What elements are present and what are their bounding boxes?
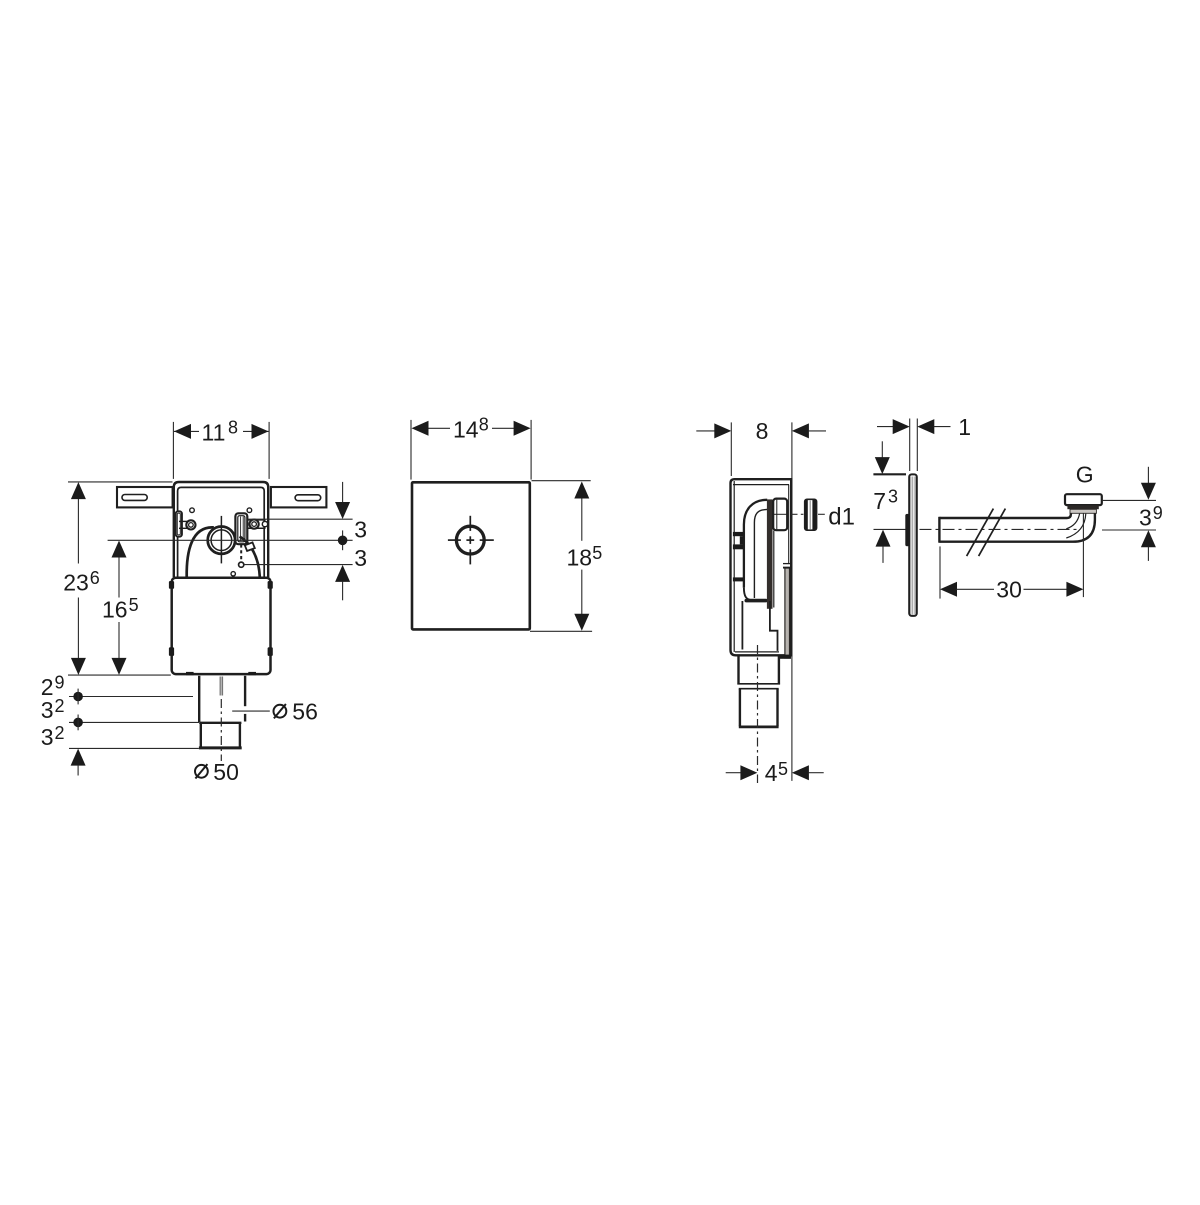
svg-text:3: 3 <box>41 697 54 723</box>
svg-text:50: 50 <box>213 759 239 785</box>
svg-text:16: 16 <box>102 597 128 623</box>
svg-text:2: 2 <box>55 696 65 716</box>
svg-text:9: 9 <box>55 673 65 693</box>
svg-text:3: 3 <box>354 545 367 571</box>
svg-text:30: 30 <box>996 577 1022 603</box>
svg-text:d1: d1 <box>828 504 855 531</box>
svg-text:2: 2 <box>55 723 65 743</box>
svg-text:3: 3 <box>1139 504 1152 530</box>
svg-text:14: 14 <box>453 416 479 442</box>
svg-text:11: 11 <box>202 419 226 445</box>
svg-text:1: 1 <box>958 414 971 440</box>
svg-text:23: 23 <box>63 570 89 596</box>
svg-text:G: G <box>1076 461 1094 487</box>
svg-text:8: 8 <box>228 418 238 438</box>
svg-text:3: 3 <box>888 487 898 507</box>
svg-text:8: 8 <box>479 415 489 435</box>
svg-text:5: 5 <box>778 759 788 779</box>
svg-text:56: 56 <box>292 698 318 724</box>
svg-text:7: 7 <box>873 488 886 514</box>
svg-text:18: 18 <box>567 545 593 571</box>
svg-text:3: 3 <box>354 516 367 542</box>
svg-text:3: 3 <box>41 724 54 750</box>
svg-text:8: 8 <box>756 418 769 444</box>
svg-text:5: 5 <box>129 595 139 615</box>
svg-text:4: 4 <box>765 760 778 786</box>
svg-text:5: 5 <box>592 543 602 563</box>
svg-text:9: 9 <box>1153 503 1163 523</box>
svg-text:2: 2 <box>41 674 54 700</box>
svg-text:6: 6 <box>90 568 100 588</box>
